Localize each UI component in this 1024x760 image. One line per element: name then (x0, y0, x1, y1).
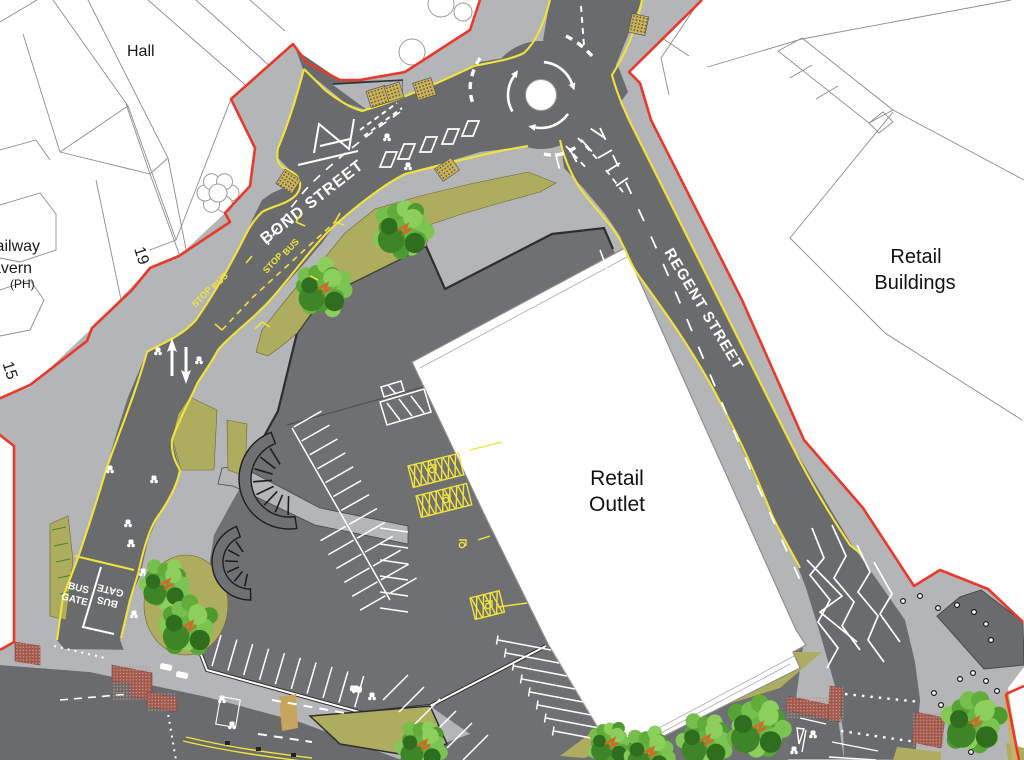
svg-text:Outlet: Outlet (589, 493, 645, 516)
svg-text:Retail: Retail (890, 246, 941, 268)
svg-text:Hall: Hall (127, 43, 155, 60)
svg-text:Retail: Retail (590, 467, 644, 490)
svg-text:Tavern: Tavern (0, 260, 32, 277)
svg-text:(PH): (PH) (10, 277, 35, 291)
svg-text:Railway: Railway (0, 238, 40, 255)
svg-text:Buildings: Buildings (874, 272, 955, 294)
